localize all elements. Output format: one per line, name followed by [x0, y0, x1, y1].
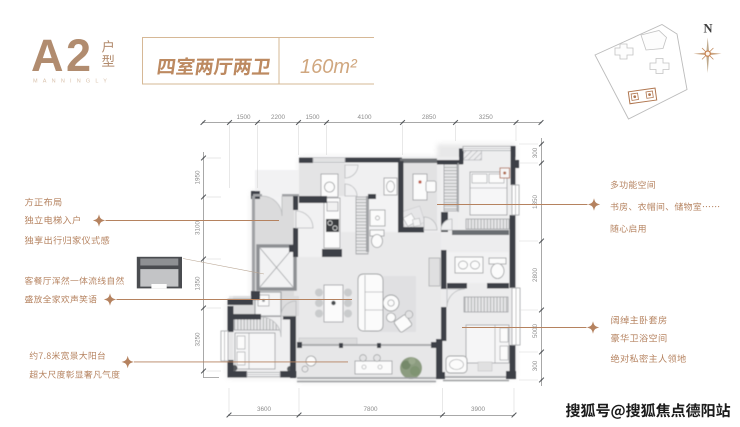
svg-text:1500: 1500: [236, 114, 251, 121]
svg-text:7800: 7800: [363, 406, 378, 413]
svg-text:160m²: 160m²: [300, 56, 358, 78]
svg-text:4100: 4100: [357, 114, 372, 121]
svg-text:300: 300: [532, 147, 539, 158]
svg-text:MANNINGLY: MANNINGLY: [33, 79, 112, 85]
svg-text:300: 300: [532, 360, 539, 371]
svg-text:1500: 1500: [305, 114, 320, 121]
svg-text:N: N: [704, 22, 713, 36]
svg-text:3250: 3250: [479, 114, 494, 121]
svg-text:5000: 5000: [532, 324, 539, 339]
svg-text:1350: 1350: [195, 276, 202, 291]
svg-text:3250: 3250: [195, 332, 202, 347]
svg-text:1850: 1850: [532, 195, 539, 210]
svg-text:A2: A2: [31, 30, 94, 81]
svg-text:2850: 2850: [422, 114, 437, 121]
svg-text:2200: 2200: [271, 114, 286, 121]
svg-text:3600: 3600: [257, 406, 272, 413]
svg-text:3900: 3900: [471, 406, 486, 413]
svg-text:3100: 3100: [195, 221, 202, 236]
svg-text:1950: 1950: [195, 170, 202, 185]
svg-text:2800: 2800: [532, 268, 539, 283]
